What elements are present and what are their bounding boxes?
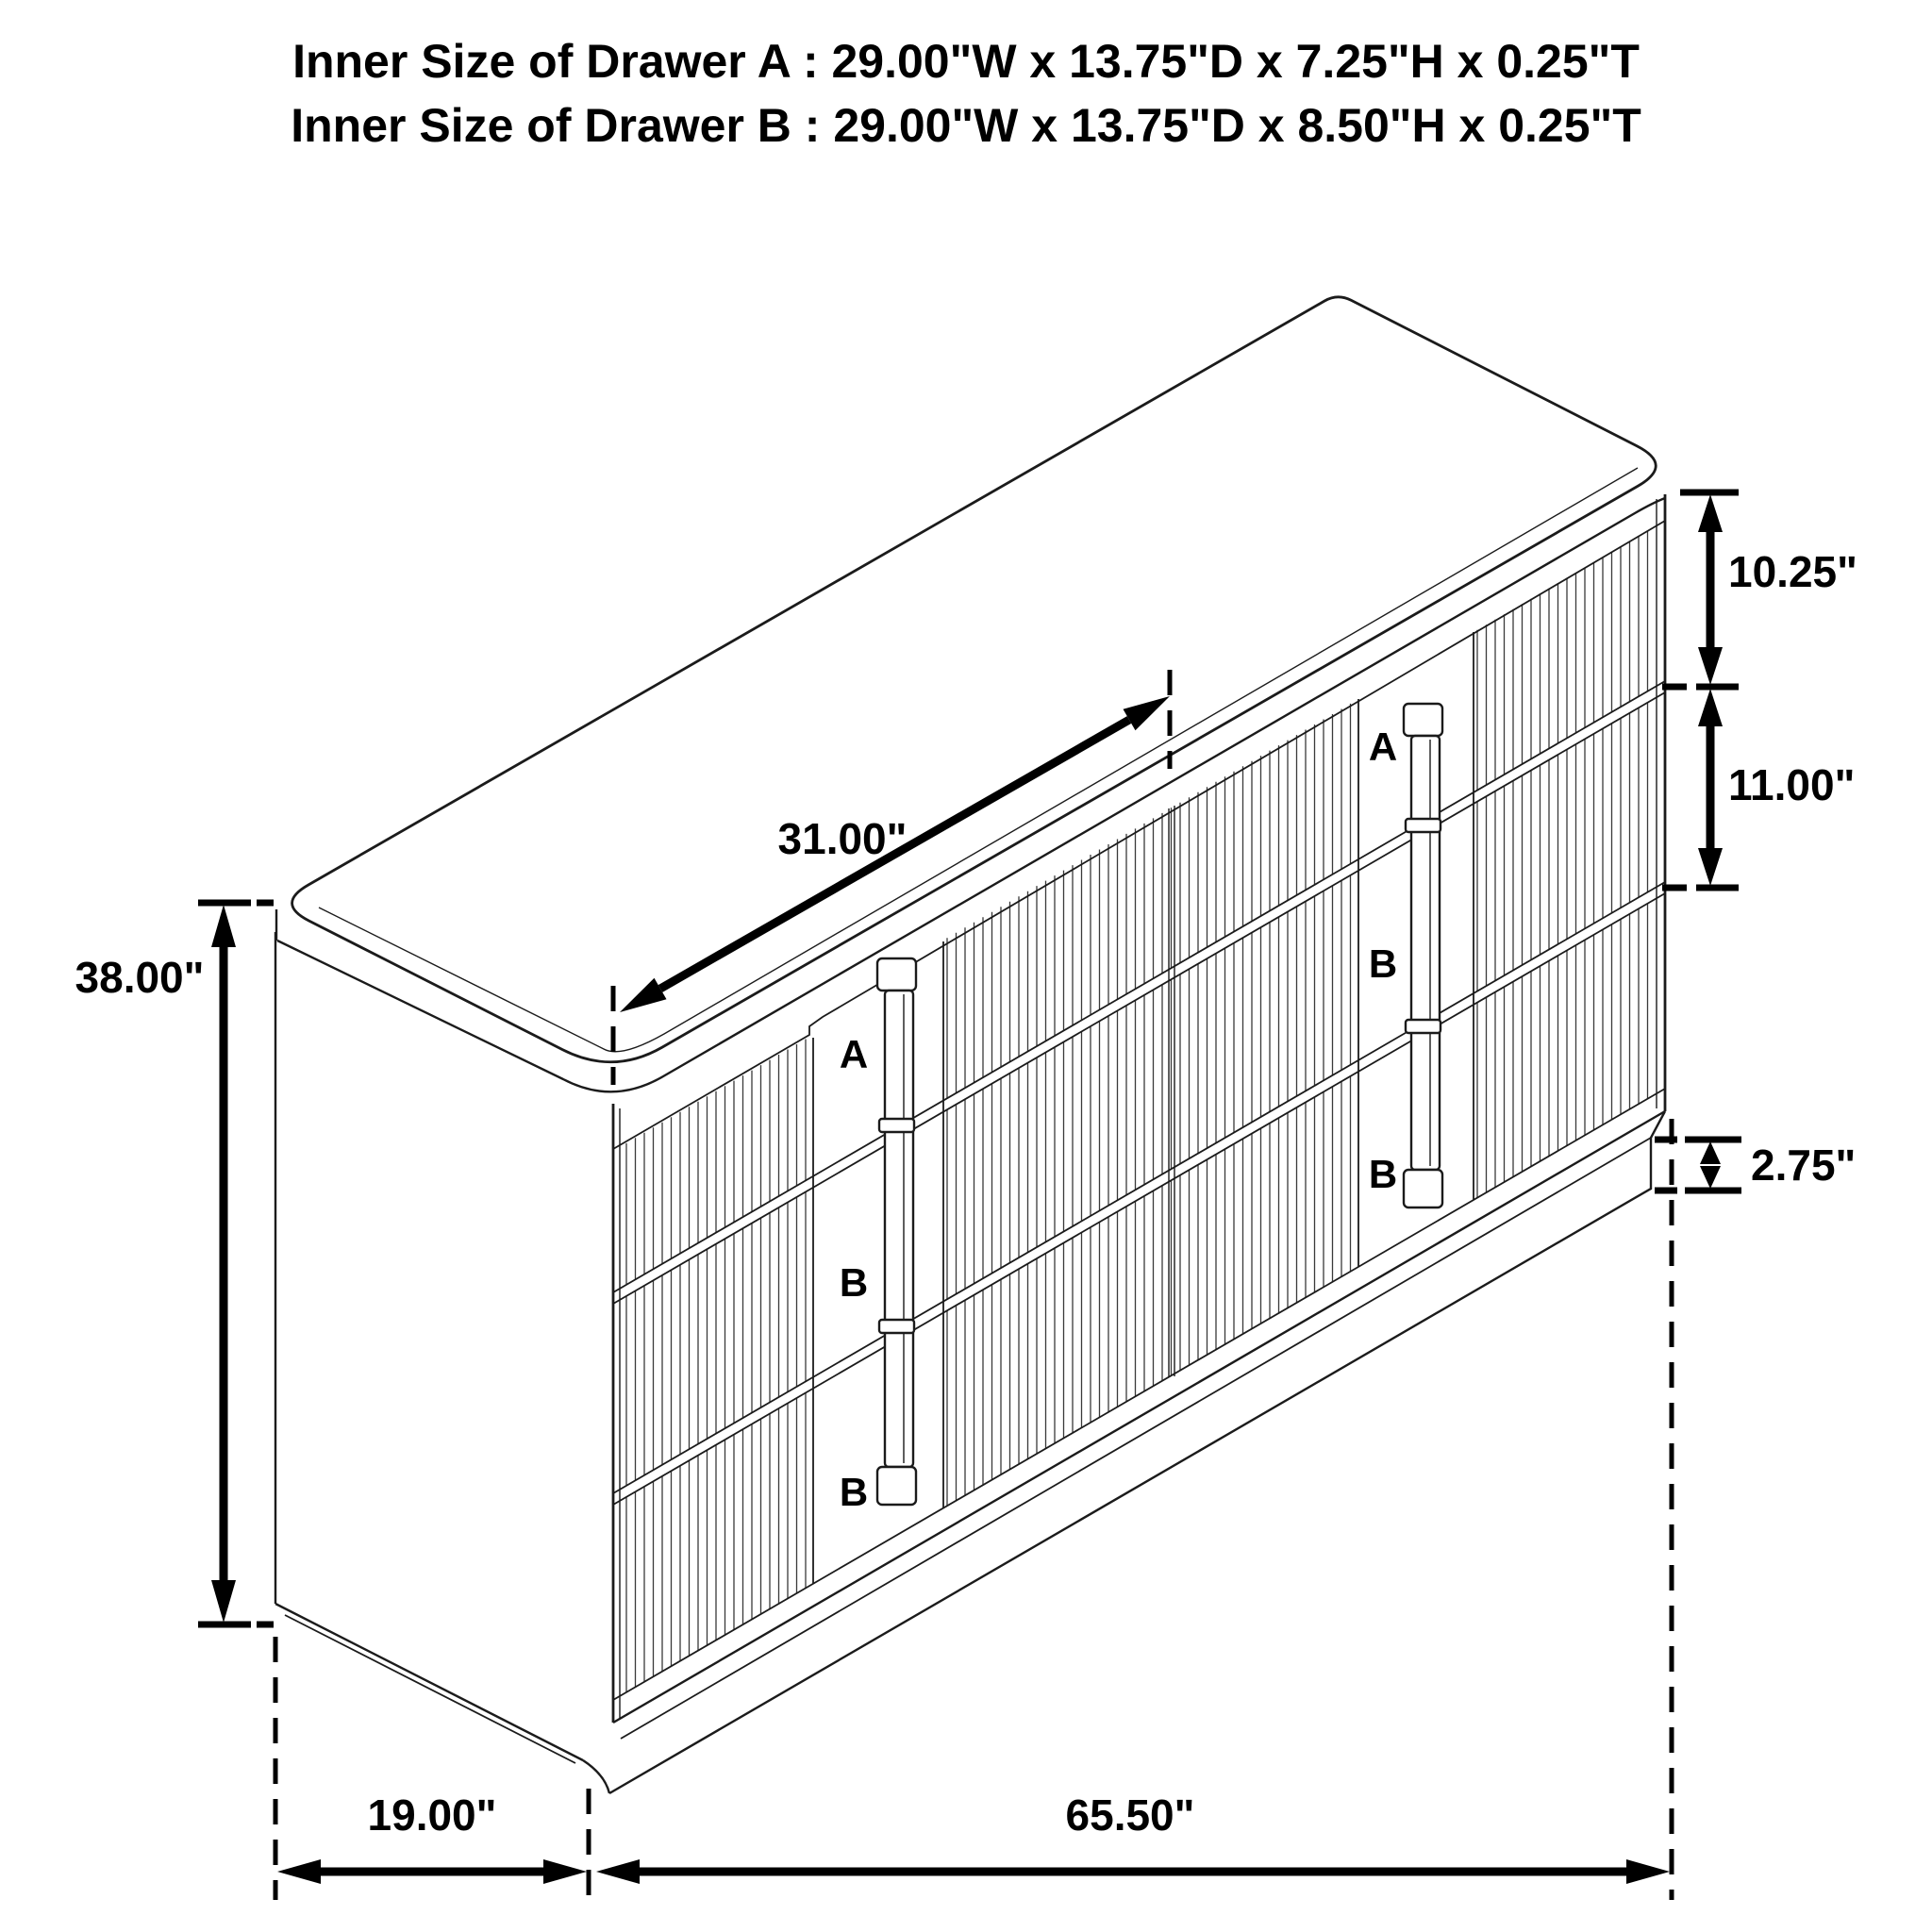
fluting <box>626 531 1648 1692</box>
dimension-middle-drawer: 11.00" <box>1662 689 1855 888</box>
side-panel <box>275 932 609 1793</box>
middle-drawer-dimension-label: 11.00" <box>1728 760 1855 809</box>
dimension-depth: 19.00" <box>277 1790 587 1884</box>
left-drawer-b1-label: B <box>840 1260 868 1305</box>
right-drawer-b1-label: B <box>1369 941 1397 986</box>
depth-dimension-label: 19.00" <box>368 1790 497 1840</box>
dimension-height: 38.00" <box>75 903 274 1624</box>
base-dimension-label: 2.75" <box>1751 1141 1856 1190</box>
dresser-drawing: A B B A B B <box>275 297 1665 1793</box>
dresser-dimension-diagram: Inner Size of Drawer A : 29.00"W x 13.75… <box>0 0 1932 1932</box>
title-block: Inner Size of Drawer A : 29.00"W x 13.75… <box>291 35 1641 152</box>
title-line-2: Inner Size of Drawer B : 29.00"W x 13.75… <box>291 99 1641 152</box>
left-drawer-a-label: A <box>840 1032 868 1076</box>
front-face <box>613 494 1665 1723</box>
dimension-top-drawer: 10.25" <box>1662 492 1857 687</box>
dimension-base: 2.75" <box>1655 1140 1856 1191</box>
drawer-groove-1 <box>613 681 1665 1304</box>
height-dimension-label: 38.00" <box>75 953 205 1002</box>
title-line-1: Inner Size of Drawer A : 29.00"W x 13.75… <box>292 35 1640 88</box>
right-drawer-b2-label: B <box>1369 1152 1397 1196</box>
right-drawer-a-label: A <box>1369 724 1397 769</box>
dimension-width: 65.50" <box>596 1790 1670 1884</box>
drawer-span-dimension-label: 31.00" <box>778 814 908 863</box>
drawer-groove-2 <box>613 882 1665 1505</box>
width-dimension-label: 65.50" <box>1066 1790 1195 1840</box>
left-drawer-b2-label: B <box>840 1470 868 1514</box>
top-drawer-dimension-label: 10.25" <box>1728 547 1857 596</box>
